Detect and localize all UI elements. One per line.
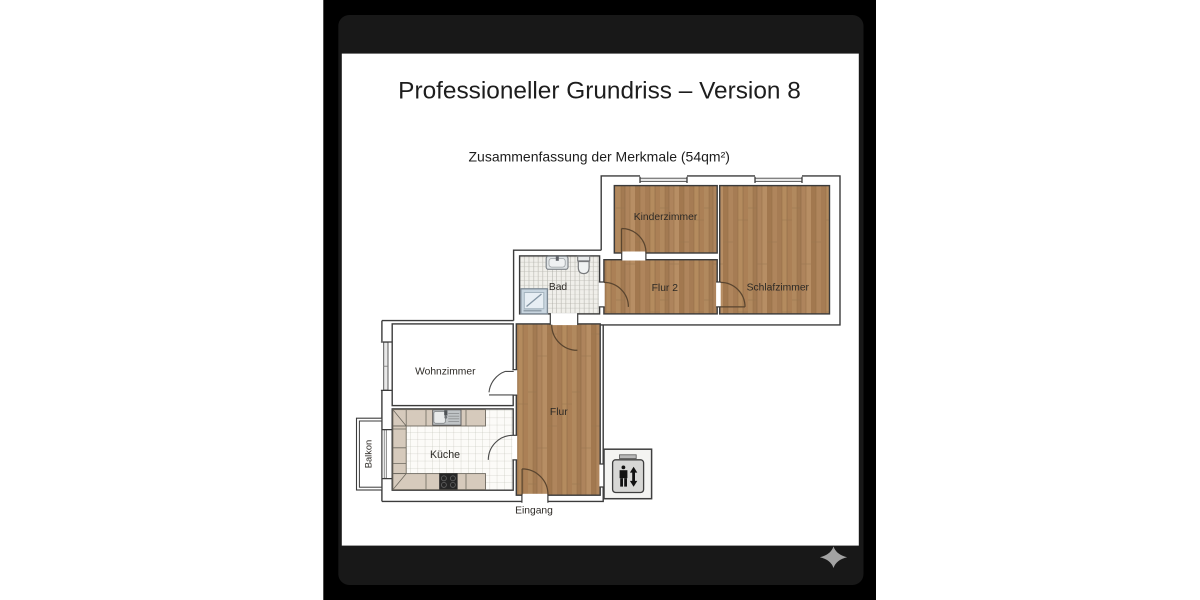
svg-text:Professioneller Grundriss – Ve: Professioneller Grundriss – Version 8 (398, 78, 801, 105)
svg-text:Schlafzimmer: Schlafzimmer (747, 282, 810, 293)
svg-text:Kinderzimmer: Kinderzimmer (634, 212, 698, 223)
svg-text:Eingang: Eingang (515, 505, 553, 516)
svg-text:Wohnzimmer: Wohnzimmer (415, 367, 476, 378)
svg-text:Flur 2: Flur 2 (652, 283, 679, 294)
svg-text:Bad: Bad (549, 282, 568, 293)
svg-text:Balkon: Balkon (364, 440, 374, 468)
svg-text:Flur: Flur (550, 407, 568, 418)
svg-text:Zusammenfassung der Merkmale (: Zusammenfassung der Merkmale (54qm²) (468, 149, 729, 165)
svg-text:Küche: Küche (430, 449, 460, 461)
